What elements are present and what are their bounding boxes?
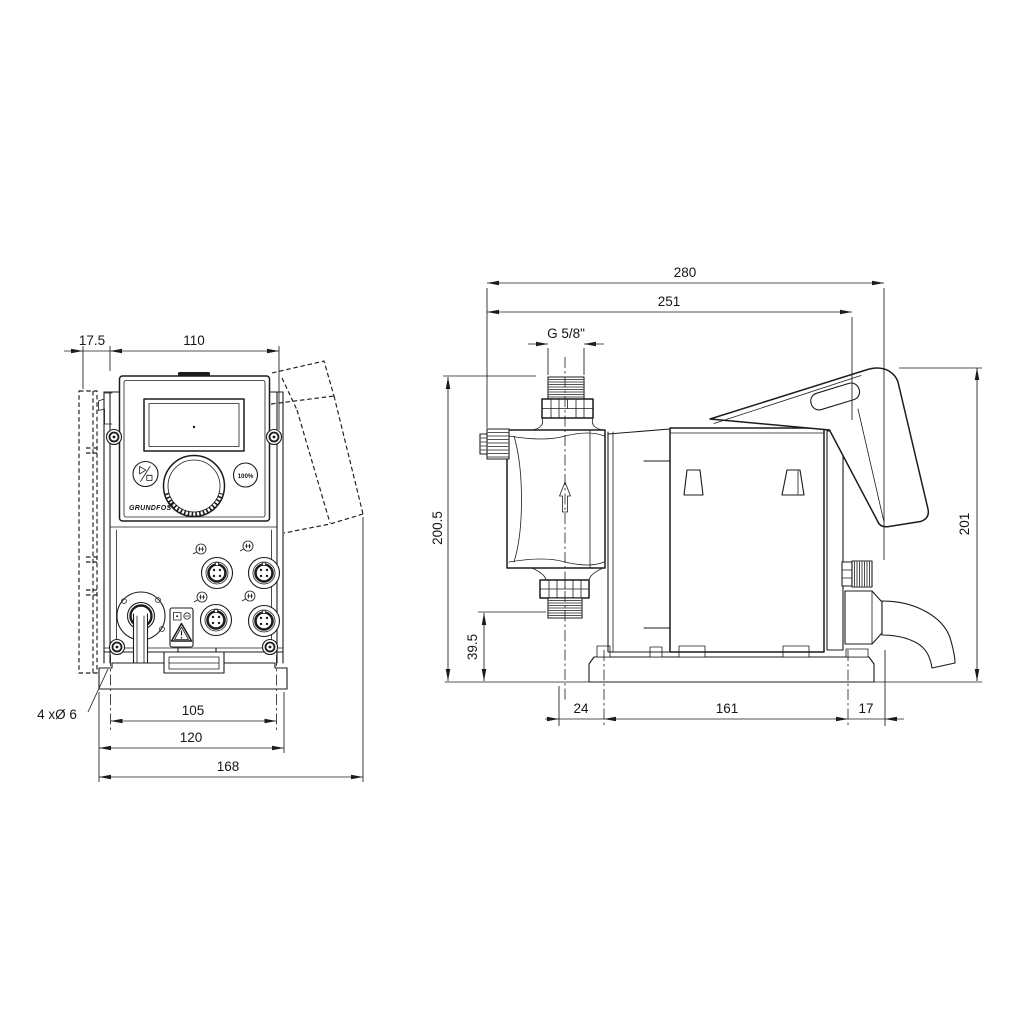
pump-dimensional-drawing: 100% GRUNDFOS xyxy=(0,0,1024,1024)
display-screen xyxy=(144,399,244,451)
dim-height-label: 200.5 xyxy=(430,511,445,545)
phantom-cover-outline xyxy=(271,361,363,533)
housing-clip xyxy=(684,470,703,495)
connector-socket[interactable] xyxy=(202,558,233,589)
motor-housing xyxy=(670,428,843,652)
dim-plate-width-label: 120 xyxy=(180,730,203,745)
housing-clip xyxy=(782,470,804,495)
thread-size-label: G 5/8" xyxy=(547,326,585,341)
tilted-control-cover xyxy=(710,368,928,527)
dim-width-label: 110 xyxy=(183,333,205,348)
rail-clamp xyxy=(164,648,224,673)
head-bracket xyxy=(608,429,670,652)
dim-hole-spacing-label: 105 xyxy=(182,703,205,718)
wall-plate-phantom xyxy=(79,391,97,673)
mounting-plate-front xyxy=(99,648,287,689)
connector-socket[interactable] xyxy=(201,605,232,636)
dim-overall-depth-label: 280 xyxy=(674,265,697,280)
holes-note-label: 4 xØ 6 xyxy=(37,707,77,722)
dim-offset-front-label: 24 xyxy=(573,701,589,716)
side-view: 280 251 G 5/8" 200.5 39.5 xyxy=(430,265,982,726)
dim-inlet-height-label: 39.5 xyxy=(465,634,480,660)
control-panel: 100% GRUNDFOS xyxy=(120,372,270,521)
button-100-label: 100% xyxy=(238,473,254,480)
power-cord xyxy=(882,601,955,668)
capacity-100-button[interactable]: 100% xyxy=(234,463,258,487)
discharge-thread xyxy=(548,377,584,399)
dim-offset-rear-label: 17 xyxy=(858,701,873,716)
dim-height-rear-label: 201 xyxy=(957,513,972,536)
dim-housing-depth-label: 251 xyxy=(658,294,681,309)
svg-text:GRUNDFOS: GRUNDFOS xyxy=(129,505,171,512)
dosing-head xyxy=(480,357,605,700)
connector-socket[interactable] xyxy=(249,606,280,637)
cable-plug xyxy=(845,591,882,644)
holes-leader-line xyxy=(88,669,108,712)
deaeration-knob[interactable] xyxy=(480,429,509,459)
start-stop-button[interactable] xyxy=(133,462,158,487)
connector-socket[interactable] xyxy=(249,558,280,589)
click-wheel-knob[interactable] xyxy=(164,456,225,517)
warning-label xyxy=(170,608,193,647)
dim-offset-label: 17.5 xyxy=(79,333,105,348)
front-view: 100% GRUNDFOS xyxy=(37,333,363,782)
dim-plate-length-label: 161 xyxy=(716,701,739,716)
dimensional-drawing-page: 100% GRUNDFOS xyxy=(0,0,1024,1024)
dim-overall-width-label: 168 xyxy=(217,759,240,774)
